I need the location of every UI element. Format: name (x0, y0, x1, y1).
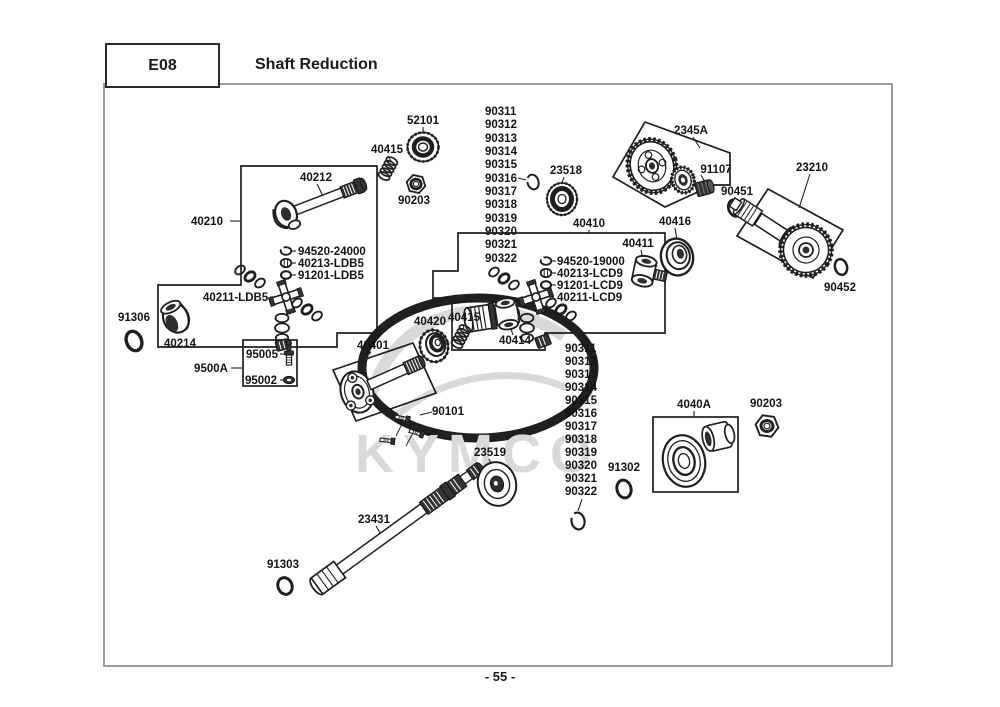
column-item: 90316 (565, 408, 597, 420)
column-item: 90318 (485, 199, 518, 211)
part-ring-stack-ldb5 (275, 314, 289, 342)
column-item: 90320 (485, 226, 517, 238)
column-item: 90315 (565, 395, 598, 407)
label-40211-ldb5: 40211-LDB5 (203, 292, 269, 304)
column-item: 90319 (485, 213, 517, 225)
label-40212: 40212 (300, 172, 332, 184)
label-91201-ldb5: 91201-LDB5 (298, 270, 364, 282)
column-item: 90317 (565, 421, 597, 433)
label-90452: 90452 (824, 282, 856, 294)
column-item: 90311 (565, 343, 597, 355)
label-23210: 23210 (796, 162, 828, 174)
part-bearing-52101 (408, 133, 439, 162)
fastener-column-right: 90311 90312 90313 90314 90315 90316 9031… (565, 343, 598, 498)
column-item: 90322 (485, 253, 517, 265)
icon-oring-91201-ldb5 (281, 271, 291, 279)
part-snapring-90322 (570, 511, 586, 530)
label-91201-lcd9: 91201-LCD9 (557, 280, 623, 292)
exploded-diagram: KYMCO (0, 0, 1000, 707)
label-40410: 40410 (573, 218, 605, 230)
label-9500a: 9500A (194, 363, 228, 375)
label-40420: 40420 (414, 316, 446, 328)
part-ring-90452 (833, 258, 849, 277)
label-40213-ldb5: 40213-LDB5 (298, 258, 364, 270)
part-bearing-23518 (547, 183, 577, 215)
section-code-box: E08 (105, 43, 220, 88)
label-40214: 40214 (164, 338, 197, 350)
label-40415-upper: 40415 (371, 144, 404, 156)
label-40401: 40401 (357, 340, 390, 352)
column-item: 90312 (565, 356, 597, 368)
fastener-column-left: 90311 90312 90313 90314 90315 90316 9031… (485, 106, 518, 265)
part-roller-91107 (694, 179, 715, 197)
column-item: 90321 (485, 239, 518, 251)
column-item: 90322 (565, 486, 597, 498)
part-yoke-40214 (157, 297, 193, 337)
part-seal-rings-ldb5-lower (290, 297, 323, 323)
label-95005: 95005 (246, 349, 279, 361)
label-91107: 91107 (700, 164, 731, 176)
column-item: 90319 (565, 447, 597, 459)
column-item: 90312 (485, 119, 517, 131)
label-23431: 23431 (358, 514, 391, 526)
column-item: 90321 (565, 473, 598, 485)
label-23519: 23519 (474, 447, 506, 459)
label-94520-19000: 94520-19000 (557, 256, 625, 268)
label-4040a: 4040A (677, 399, 711, 411)
label-40211-lcd9: 40211-LCD9 (557, 292, 622, 304)
label-91302: 91302 (608, 462, 640, 474)
column-item: 90315 (485, 159, 518, 171)
icon-washer-40213-ldb5 (281, 259, 292, 267)
part-ring-91306 (123, 329, 144, 353)
label-40416: 40416 (659, 216, 691, 228)
part-flange-40401 (335, 367, 378, 417)
page-title: Shaft Reduction (255, 56, 378, 74)
part-clip-95002 (284, 376, 295, 383)
label-40213-lcd9: 40213-LCD9 (557, 268, 623, 280)
part-ring-91302 (615, 479, 633, 500)
column-item: 90320 (565, 460, 597, 472)
section-code: E08 (148, 57, 176, 75)
column-item: 90317 (485, 186, 517, 198)
part-coupler-4040a (700, 420, 737, 453)
label-95002: 95002 (245, 375, 277, 387)
part-nut-90203-upper (405, 174, 427, 194)
label-52101: 52101 (407, 115, 440, 127)
part-nut-90203-lower (754, 414, 780, 437)
label-40411: 40411 (622, 238, 654, 250)
icon-washer-40213-lcd9 (541, 269, 552, 277)
column-item: 90316 (485, 173, 517, 185)
label-90203-lower: 90203 (750, 398, 782, 410)
label-90451: 90451 (721, 186, 754, 198)
part-ring-91303 (276, 576, 295, 597)
icon-snapring-94520-19000 (541, 257, 552, 265)
column-item: 90311 (485, 106, 517, 118)
column-item: 90314 (485, 146, 518, 158)
label-2345a: 2345A (674, 125, 708, 137)
label-91303: 91303 (267, 559, 299, 571)
label-90203-upper: 90203 (398, 195, 430, 207)
label-40414: 40414 (499, 335, 532, 347)
icon-snapring-94520-24000 (281, 247, 292, 255)
part-ring-90316 (526, 173, 541, 190)
label-94520-24000: 94520-24000 (298, 246, 366, 258)
column-item: 90313 (565, 369, 597, 381)
column-item: 90314 (565, 382, 598, 394)
part-spring-40415-upper (377, 155, 399, 181)
catalog-page: E08 Shaft Reduction - 55 - (0, 0, 1000, 707)
label-40415-lower: 40415 (448, 312, 481, 324)
label-23518: 23518 (550, 165, 583, 177)
label-90101: 90101 (432, 406, 465, 418)
column-item: 90313 (485, 133, 517, 145)
part-cap-lcd9 (535, 333, 552, 348)
label-91306: 91306 (118, 312, 150, 324)
label-40210: 40210 (191, 216, 223, 228)
part-spring-40415-lower (450, 323, 472, 349)
part-seal-rings-lcd9-upper (487, 266, 520, 292)
column-item: 90318 (565, 434, 598, 446)
